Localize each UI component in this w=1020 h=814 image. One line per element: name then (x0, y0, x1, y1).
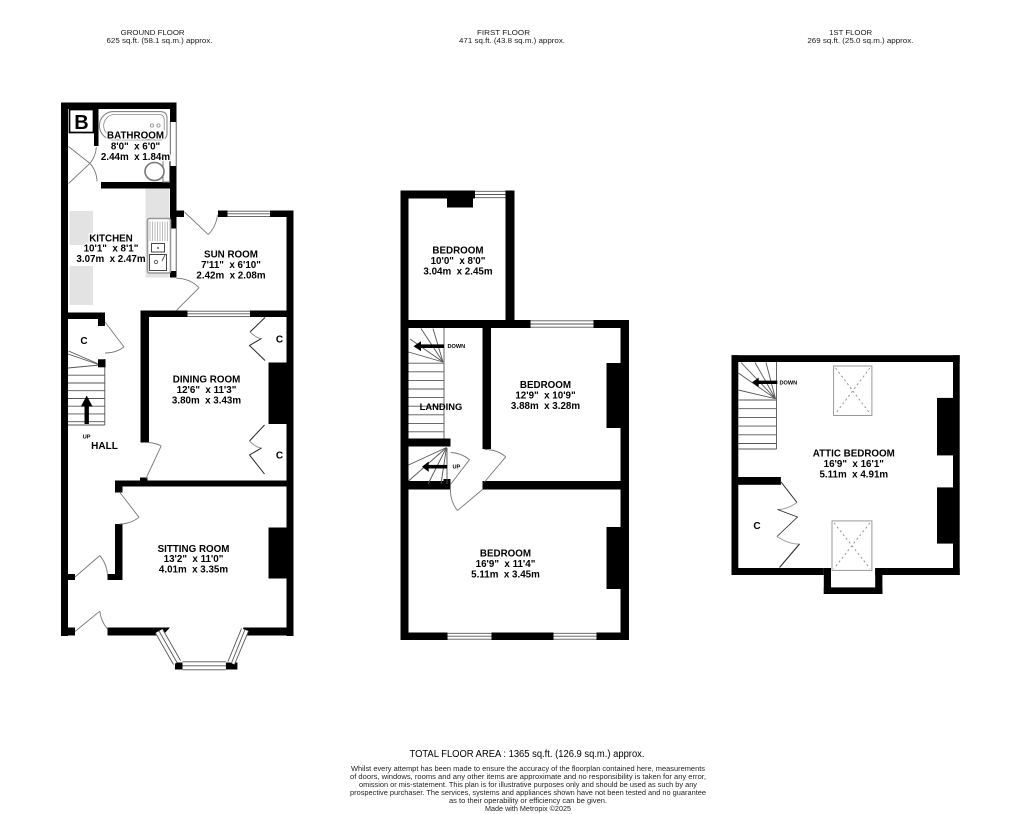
svg-text:UP: UP (83, 435, 91, 441)
svg-text:C: C (753, 521, 760, 532)
svg-text:5.11m x 4.91m: 5.11m x 4.91m (819, 470, 888, 481)
svg-text:GROUND FLOOR: GROUND FLOOR (121, 30, 185, 37)
svg-text:5.11m x 3.45m: 5.11m x 3.45m (471, 570, 540, 581)
svg-text:TOTAL FLOOR AREA : 1365 sq.ft.: TOTAL FLOOR AREA : 1365 sq.ft. (126.9 sq… (410, 749, 645, 760)
svg-text:12'6" x 11'3": 12'6" x 11'3" (177, 385, 237, 396)
svg-text:LANDING: LANDING (420, 401, 463, 412)
svg-text:625 sq.ft. (58.1 sq.m.) approx: 625 sq.ft. (58.1 sq.m.) approx. (107, 38, 213, 45)
svg-text:1ST FLOOR: 1ST FLOOR (829, 30, 872, 37)
svg-text:3.80m x 3.43m: 3.80m x 3.43m (172, 396, 241, 407)
svg-text:DINING ROOM: DINING ROOM (173, 375, 241, 386)
svg-text:7'11" x 6'10": 7'11" x 6'10" (201, 260, 261, 271)
svg-text:prospective purchaser. The ser: prospective purchaser. The services, sys… (350, 790, 706, 797)
svg-text:BATHROOM: BATHROOM (107, 131, 164, 142)
svg-text:C: C (276, 451, 283, 462)
svg-text:2.44m x 1.84m: 2.44m x 1.84m (101, 152, 170, 163)
svg-text:269 sq.ft. (25.0 sq.m.) approx: 269 sq.ft. (25.0 sq.m.) approx. (807, 38, 913, 45)
svg-text:C: C (276, 335, 283, 346)
svg-text:13'2" x 11'0": 13'2" x 11'0" (164, 554, 224, 565)
svg-text:omission or mis-statement. Thi: omission or mis-statement. This plan is … (359, 782, 698, 789)
svg-text:16'9" x 11'4": 16'9" x 11'4" (476, 559, 536, 570)
svg-text:UP: UP (453, 465, 461, 471)
svg-text:DOWN: DOWN (780, 380, 798, 386)
svg-text:DOWN: DOWN (448, 344, 466, 350)
svg-text:SUN ROOM: SUN ROOM (204, 250, 258, 261)
svg-text:Made with Metropix ©2025: Made with Metropix ©2025 (485, 805, 571, 813)
svg-text:16'9" x 16'1": 16'9" x 16'1" (824, 459, 884, 470)
svg-text:10'1" x 8'1": 10'1" x 8'1" (84, 244, 139, 255)
svg-text:C: C (80, 336, 87, 347)
svg-text:3.88m x 3.28m: 3.88m x 3.28m (511, 401, 580, 412)
svg-text:of doors, windows, rooms and a: of doors, windows, rooms and any other i… (350, 774, 706, 781)
svg-text:4.01m x 3.35m: 4.01m x 3.35m (159, 565, 228, 576)
svg-text:471 sq.ft. (43.8 sq.m.) approx: 471 sq.ft. (43.8 sq.m.) approx. (459, 38, 565, 45)
svg-text:3.07m x 2.47m: 3.07m x 2.47m (76, 254, 145, 265)
svg-text:8'0" x 6'0": 8'0" x 6'0" (111, 142, 160, 153)
svg-text:as to their operability or eff: as to their operability or efficiency ca… (449, 798, 607, 805)
svg-text:Whilst every attempt has been: Whilst every attempt has been made to en… (351, 766, 706, 773)
svg-text:HALL: HALL (91, 441, 118, 452)
svg-text:BEDROOM: BEDROOM (480, 549, 531, 560)
svg-text:BEDROOM: BEDROOM (520, 380, 571, 391)
svg-text:BEDROOM: BEDROOM (432, 246, 483, 257)
svg-text:3.04m x 2.45m: 3.04m x 2.45m (423, 267, 492, 278)
svg-text:B: B (74, 112, 88, 134)
svg-text:FIRST FLOOR: FIRST FLOOR (477, 30, 530, 37)
svg-text:12'9" x 10'9": 12'9" x 10'9" (515, 391, 575, 402)
svg-text:2.42m x 2.08m: 2.42m x 2.08m (196, 271, 265, 282)
svg-text:10'0" x 8'0": 10'0" x 8'0" (431, 256, 486, 267)
svg-text:ATTIC BEDROOM: ATTIC BEDROOM (813, 449, 895, 460)
